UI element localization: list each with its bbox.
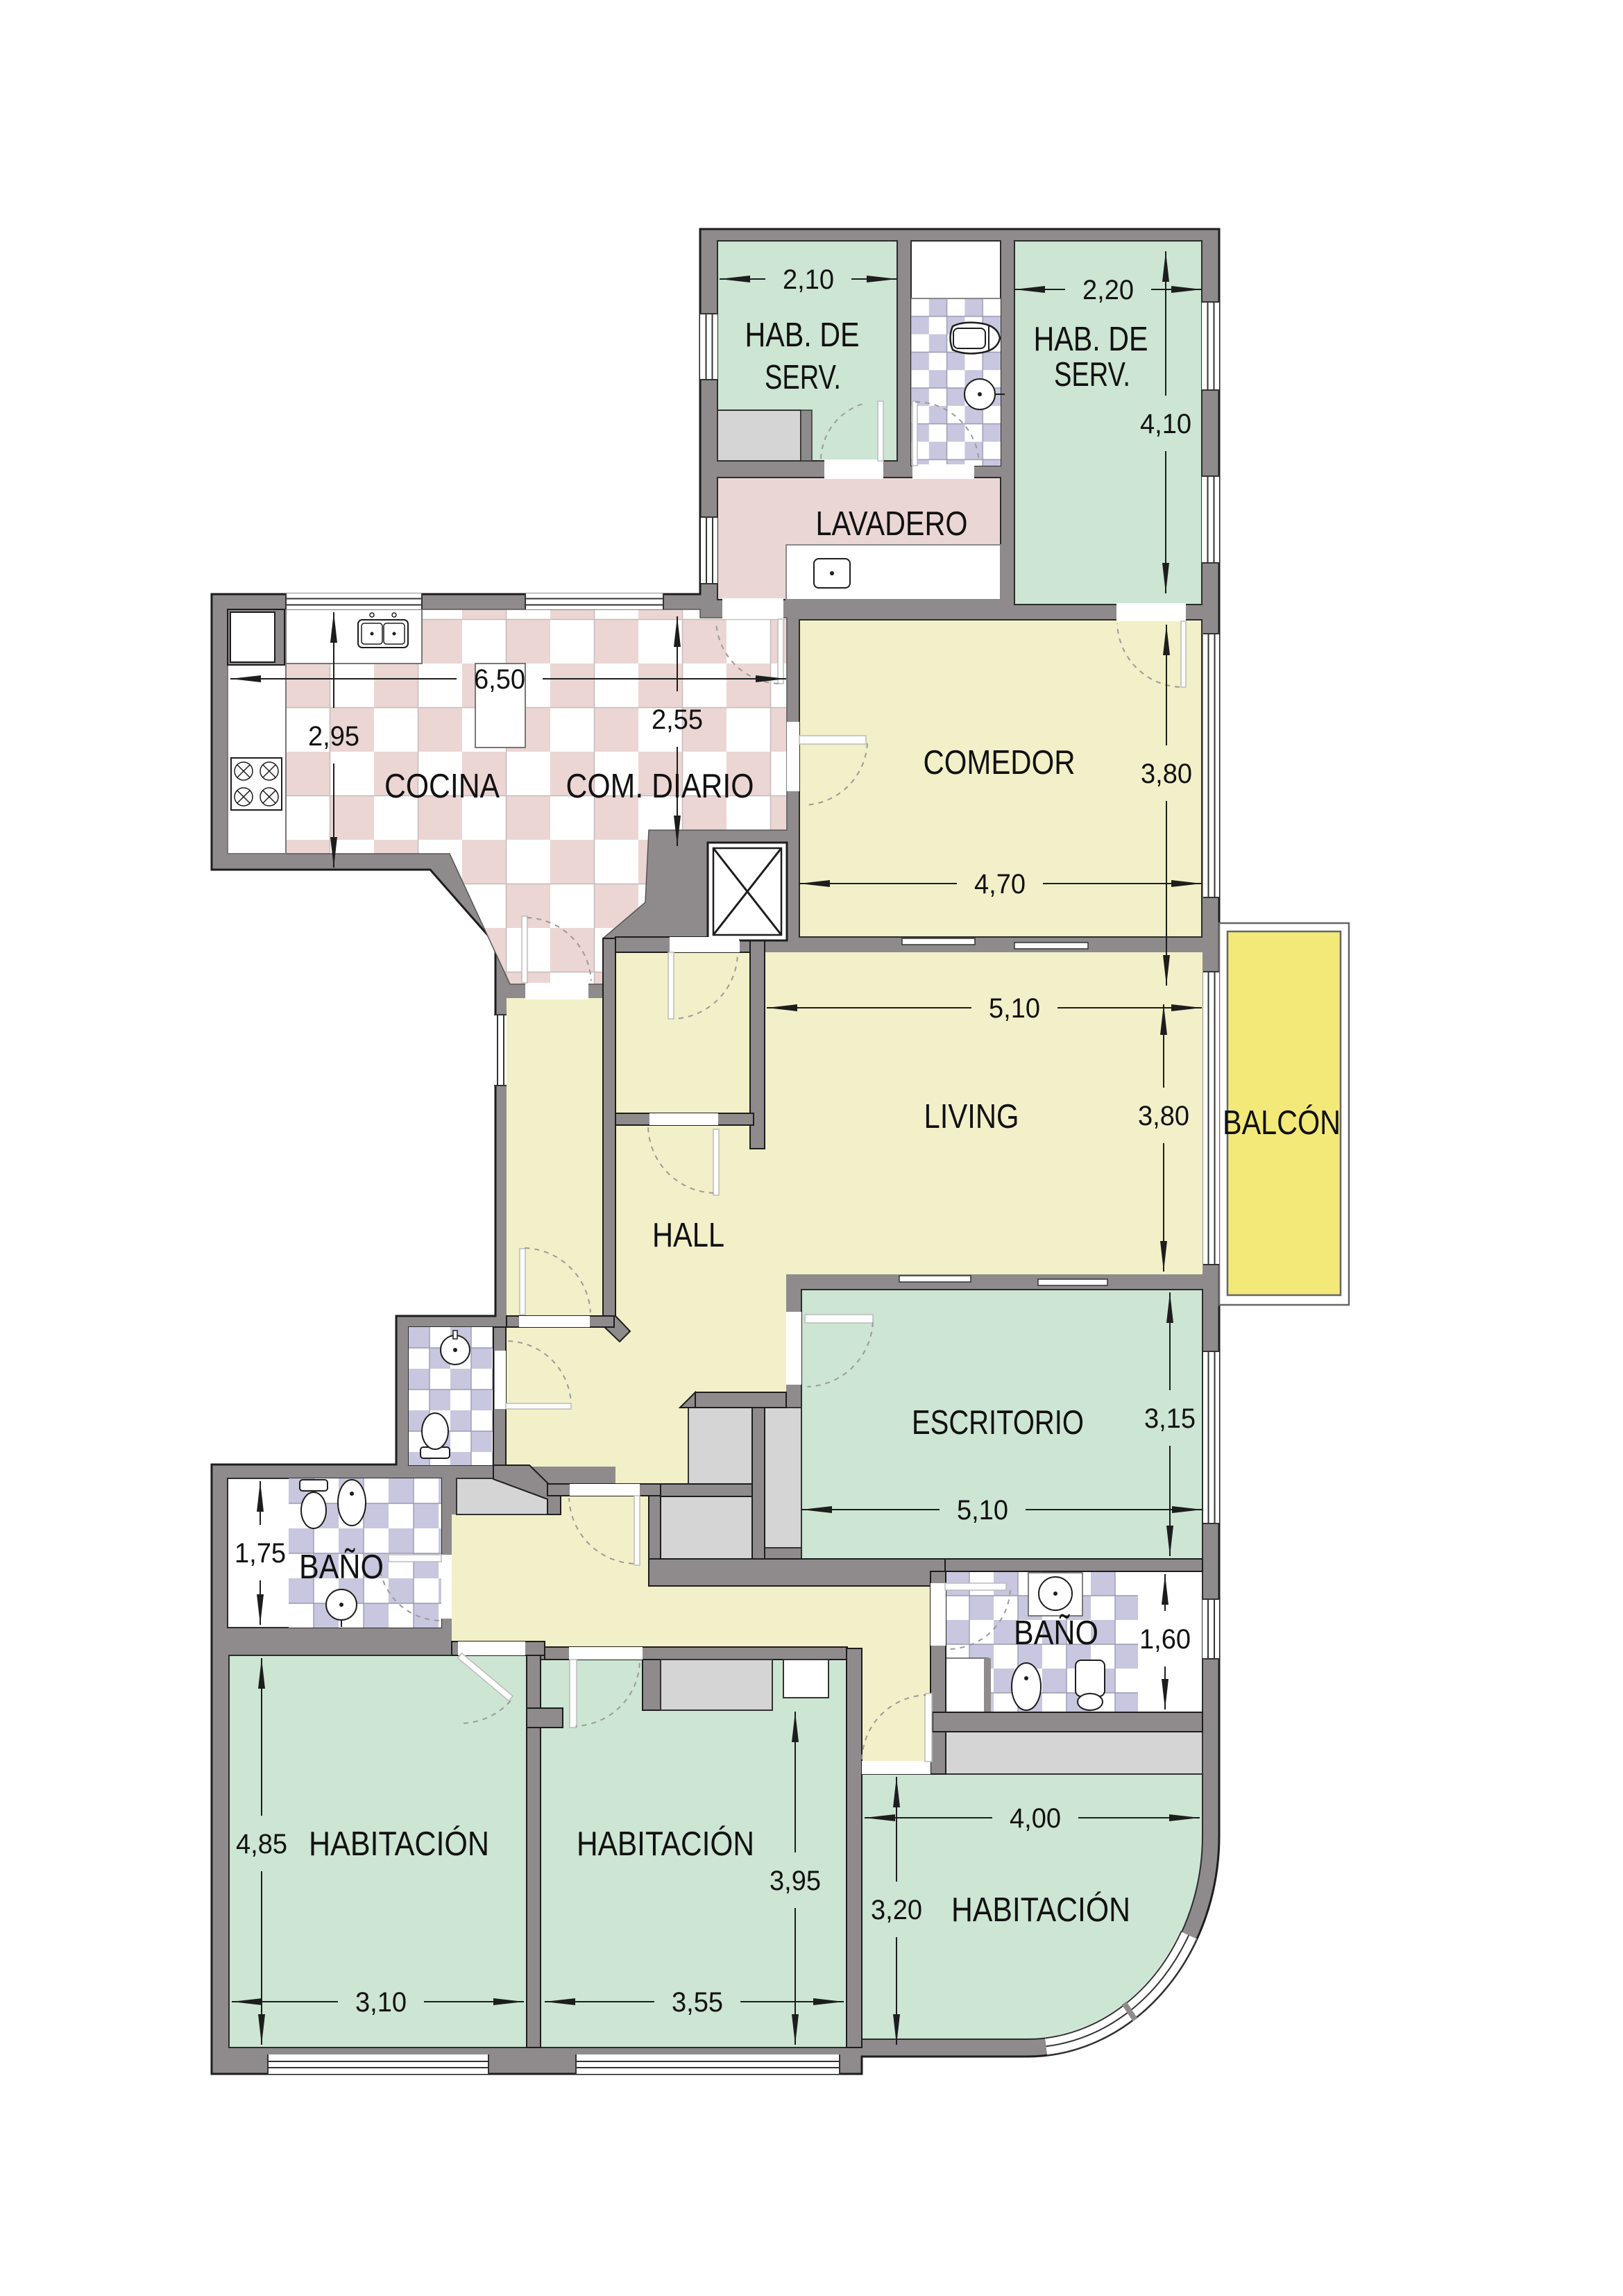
svg-text:4,00: 4,00 — [1010, 1803, 1061, 1834]
svg-text:HAB. DE: HAB. DE — [1034, 321, 1148, 358]
svg-text:3,20: 3,20 — [871, 1895, 922, 1925]
svg-text:5,10: 5,10 — [957, 1495, 1008, 1526]
svg-text:HALL: HALL — [652, 1217, 724, 1254]
svg-text:4,70: 4,70 — [974, 869, 1026, 900]
svg-text:BALCÓN: BALCÓN — [1223, 1104, 1341, 1142]
svg-text:ESCRITORIO: ESCRITORIO — [912, 1404, 1084, 1442]
svg-text:COMEDOR: COMEDOR — [924, 744, 1076, 782]
svg-text:COCINA: COCINA — [384, 768, 500, 805]
svg-text:1,60: 1,60 — [1139, 1624, 1191, 1655]
svg-text:3,95: 3,95 — [770, 1866, 821, 1896]
svg-text:HABITACIÓN: HABITACIÓN — [951, 1891, 1130, 1929]
svg-text:1,75: 1,75 — [235, 1538, 286, 1569]
svg-text:4,85: 4,85 — [236, 1829, 287, 1859]
svg-text:HABITACIÓN: HABITACIÓN — [577, 1825, 754, 1863]
svg-text:2,95: 2,95 — [308, 721, 359, 752]
svg-text:3,10: 3,10 — [355, 1987, 407, 2018]
svg-text:2,20: 2,20 — [1082, 275, 1134, 305]
svg-text:BAÑO: BAÑO — [299, 1548, 384, 1586]
svg-text:COM. DIARIO: COM. DIARIO — [566, 768, 754, 805]
svg-text:2,10: 2,10 — [783, 264, 834, 295]
svg-text:4,10: 4,10 — [1140, 409, 1191, 439]
svg-text:BAÑO: BAÑO — [1014, 1614, 1098, 1652]
svg-text:3,55: 3,55 — [672, 1987, 723, 2018]
svg-text:6,50: 6,50 — [474, 664, 525, 695]
svg-text:3,80: 3,80 — [1141, 759, 1192, 789]
svg-text:5,10: 5,10 — [989, 993, 1040, 1024]
svg-text:2,55: 2,55 — [652, 704, 703, 735]
svg-text:SERV.: SERV. — [765, 359, 841, 396]
svg-text:SERV.: SERV. — [1054, 356, 1130, 394]
svg-text:HABITACIÓN: HABITACIÓN — [309, 1825, 489, 1863]
svg-text:LAVADERO: LAVADERO — [816, 505, 968, 543]
svg-text:HAB. DE: HAB. DE — [745, 316, 860, 354]
svg-text:LIVING: LIVING — [924, 1098, 1019, 1136]
svg-text:3,80: 3,80 — [1138, 1101, 1189, 1131]
svg-text:3,15: 3,15 — [1144, 1403, 1196, 1434]
